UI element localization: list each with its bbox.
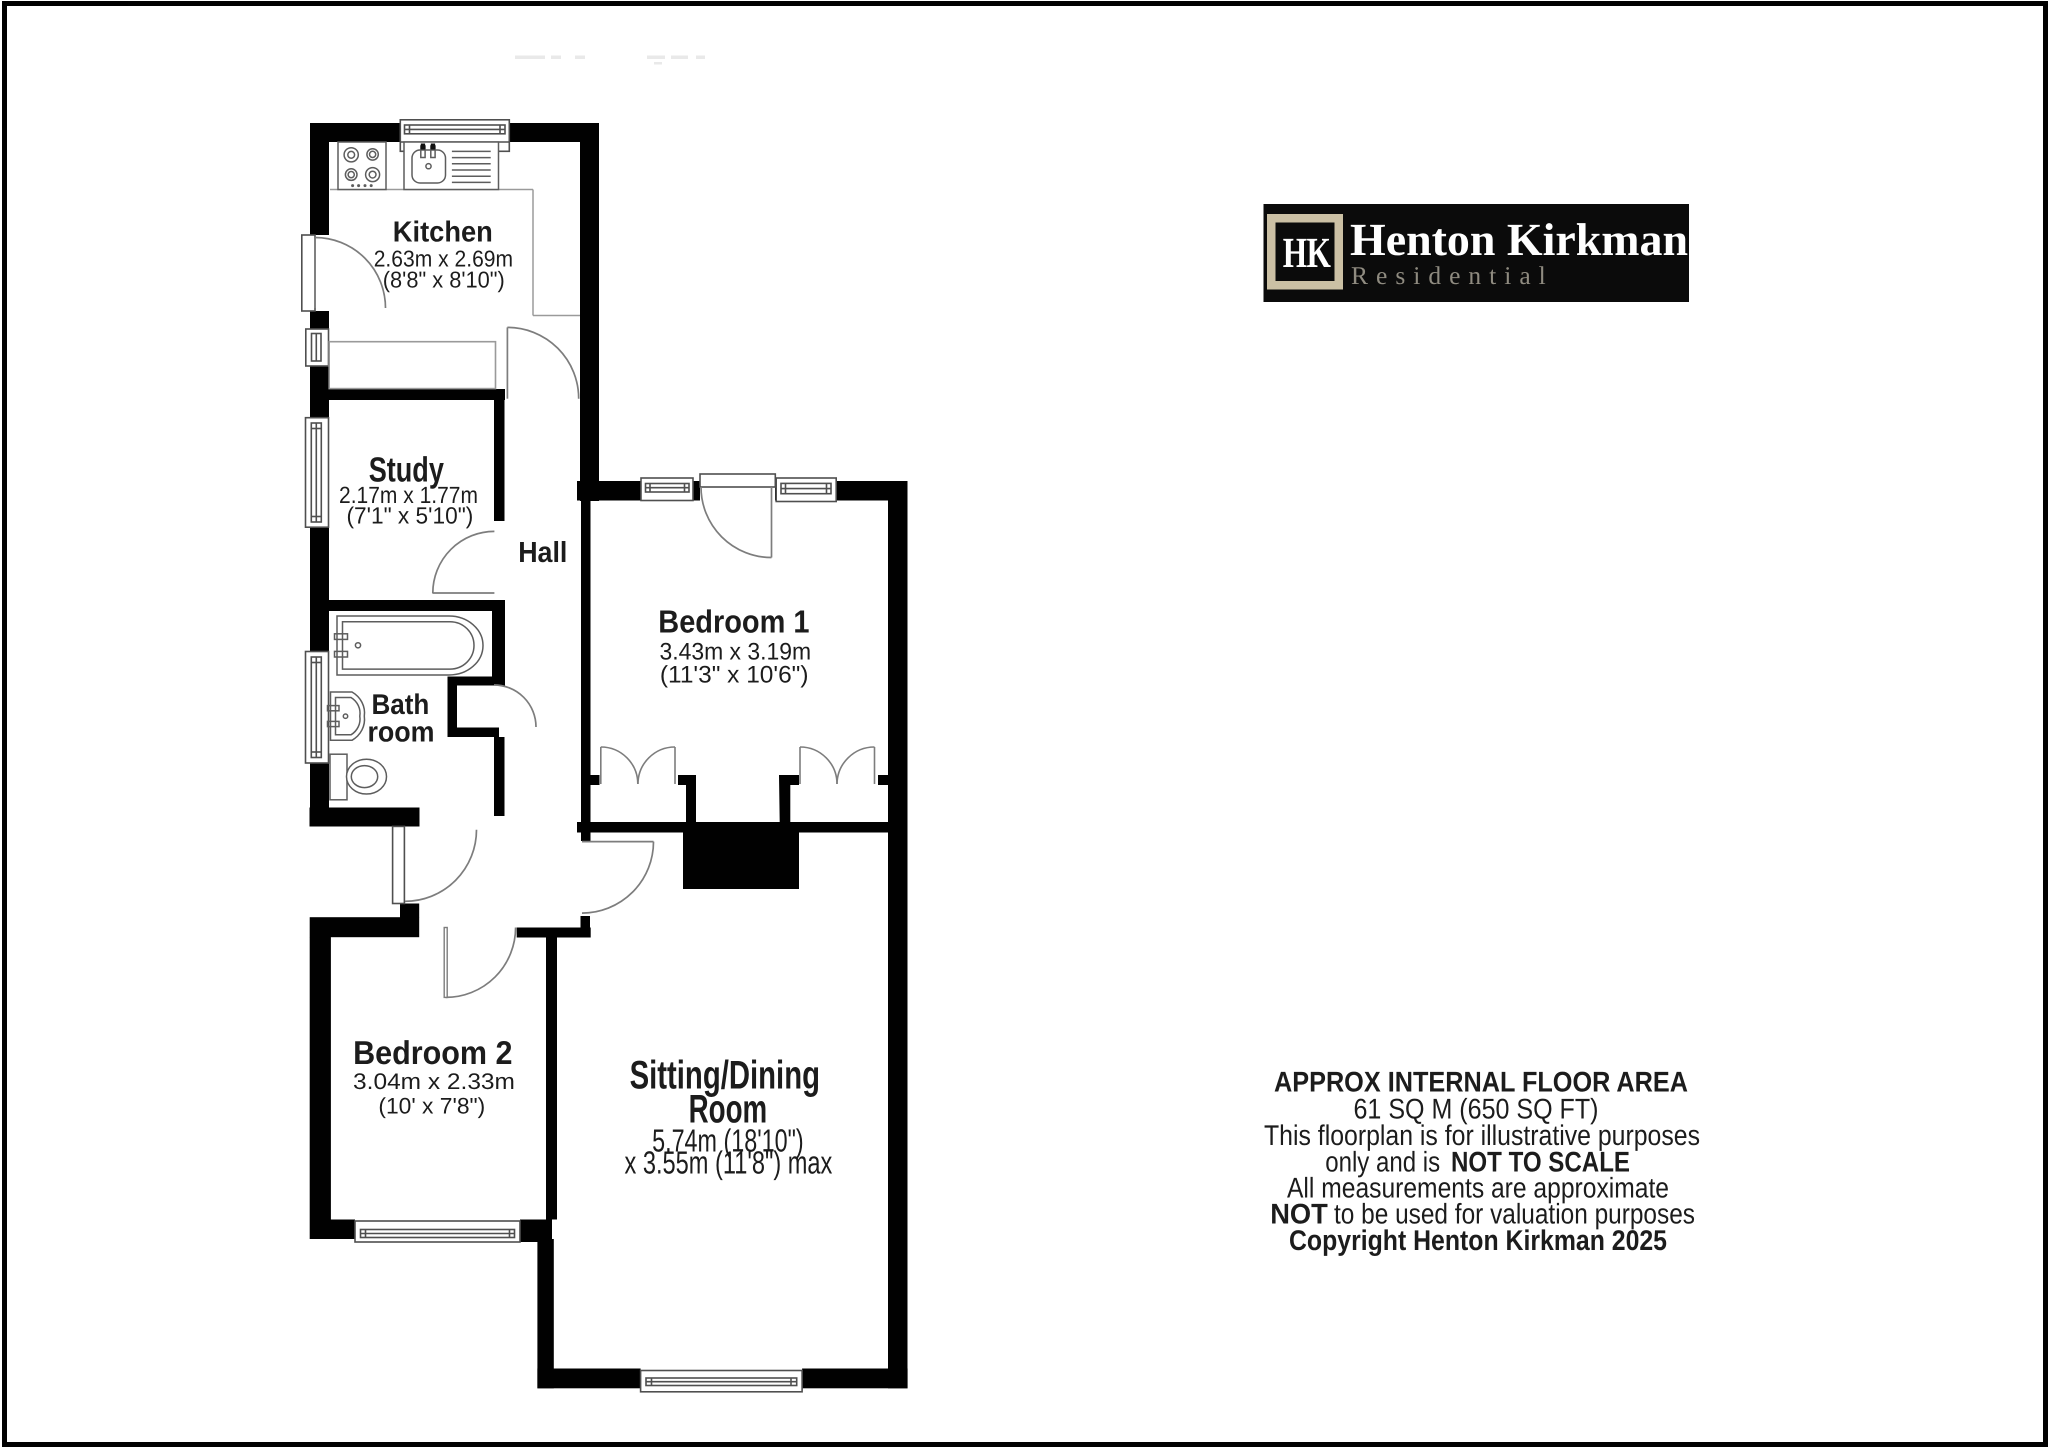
svg-text:room: room bbox=[367, 717, 434, 749]
svg-text:Bedroom 1: Bedroom 1 bbox=[658, 603, 809, 639]
svg-text:(8'8" x 8'10"): (8'8" x 8'10") bbox=[383, 267, 505, 293]
svg-text:(10' x 7'8"): (10' x 7'8") bbox=[378, 1093, 485, 1118]
svg-text:Kitchen: Kitchen bbox=[393, 216, 493, 248]
svg-text:Hall: Hall bbox=[518, 537, 567, 569]
svg-text:Bedroom 2: Bedroom 2 bbox=[353, 1034, 512, 1071]
svg-text:(11'3" x 10'6"): (11'3" x 10'6") bbox=[660, 662, 809, 689]
svg-text:x 3.55m (11'8") max: x 3.55m (11'8") max bbox=[625, 1145, 833, 1181]
svg-text:(7'1" x 5'10"): (7'1" x 5'10") bbox=[347, 503, 474, 529]
svg-text:3.04m x 2.33m: 3.04m x 2.33m bbox=[353, 1069, 515, 1094]
svg-text:Henton Kirkman: Henton Kirkman bbox=[1350, 214, 1688, 265]
svg-text:HK: HK bbox=[1283, 230, 1332, 277]
svg-text:Copyright Henton Kirkman 2025: Copyright Henton Kirkman 2025 bbox=[1289, 1225, 1667, 1257]
svg-text:Residential: Residential bbox=[1351, 261, 1554, 290]
